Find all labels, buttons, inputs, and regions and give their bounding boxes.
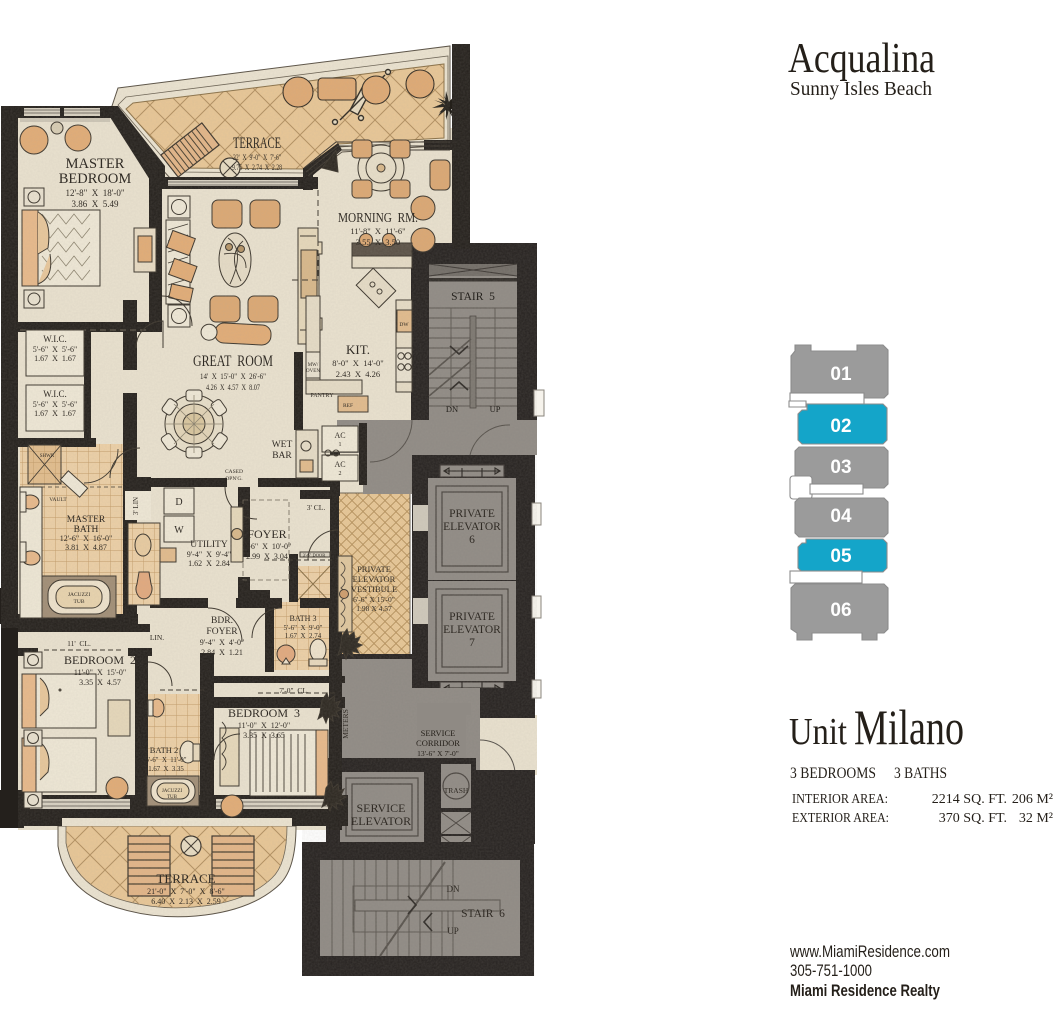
svg-text:01: 01 bbox=[830, 364, 852, 385]
svg-text:370 SQ. FT.: 370 SQ. FT. bbox=[939, 811, 1007, 826]
svg-text:05: 05 bbox=[830, 546, 852, 567]
svg-text:www.MiamiResidence.com: www.MiamiResidence.com bbox=[789, 942, 950, 961]
svg-text:CORRIDOR: CORRIDOR bbox=[416, 738, 460, 748]
svg-text:SERVICE: SERVICE bbox=[421, 728, 456, 738]
svg-text:Unit: Unit bbox=[789, 711, 847, 753]
svg-text:INTERIOR AREA:: INTERIOR AREA: bbox=[792, 792, 888, 807]
svg-text:2214 SQ. FT.: 2214 SQ. FT. bbox=[932, 792, 1007, 807]
svg-text:04: 04 bbox=[830, 506, 852, 527]
svg-text:02: 02 bbox=[830, 416, 851, 437]
svg-text:EXTERIOR AREA:: EXTERIOR AREA: bbox=[792, 811, 889, 826]
svg-text:206 M²: 206 M² bbox=[1012, 792, 1053, 807]
svg-text:13'-6" X 7'-0": 13'-6" X 7'-0" bbox=[417, 749, 459, 758]
svg-text:Acqualina: Acqualina bbox=[788, 36, 935, 82]
svg-text:06: 06 bbox=[830, 600, 851, 621]
svg-text:3 BATHS: 3 BATHS bbox=[894, 765, 947, 782]
svg-text:Milano: Milano bbox=[854, 699, 964, 755]
svg-text:03: 03 bbox=[830, 457, 851, 478]
svg-text:3 BEDROOMS: 3 BEDROOMS bbox=[790, 765, 876, 782]
svg-text:32 M²: 32 M² bbox=[1019, 811, 1053, 826]
svg-text:Sunny Isles Beach: Sunny Isles Beach bbox=[790, 78, 932, 100]
svg-text:Miami Residence Realty: Miami Residence Realty bbox=[790, 981, 940, 1000]
svg-text:305-751-1000: 305-751-1000 bbox=[790, 961, 872, 980]
